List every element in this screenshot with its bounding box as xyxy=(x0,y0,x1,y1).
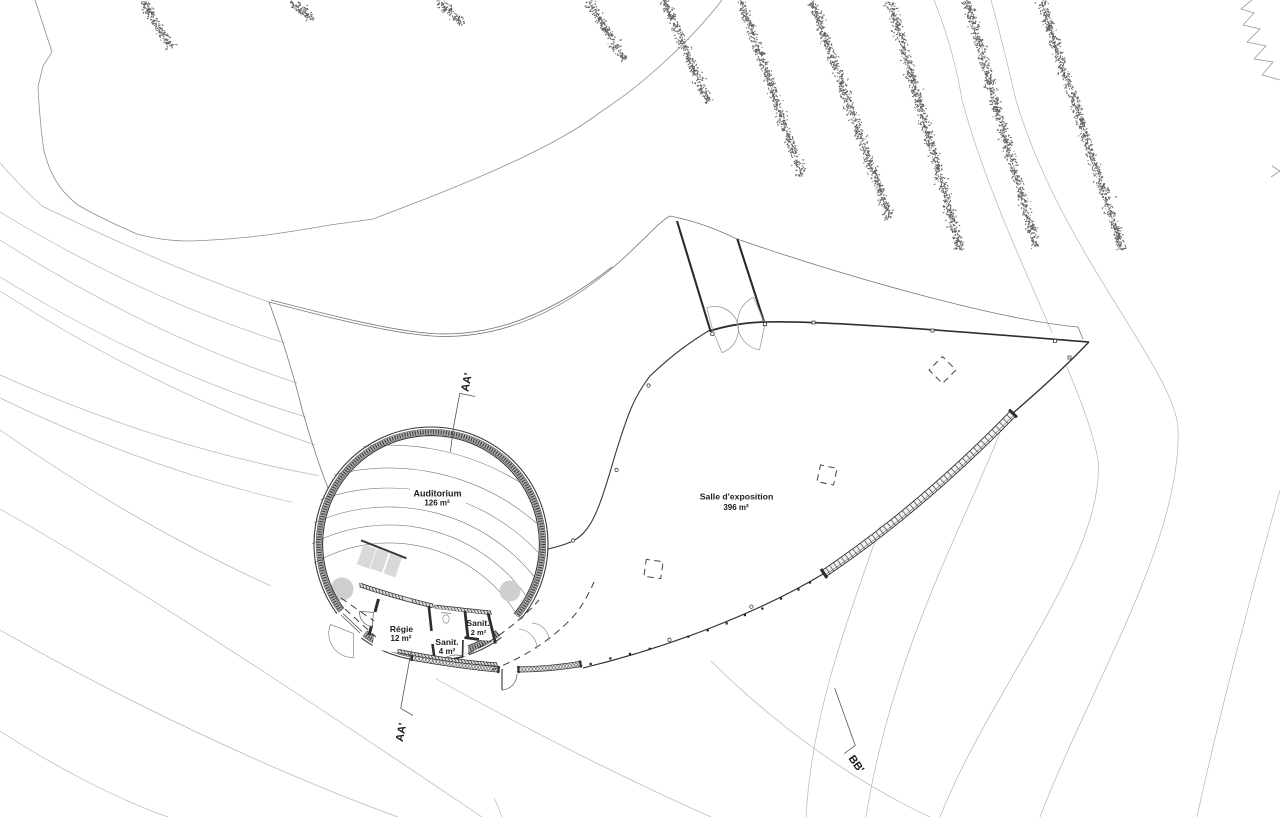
svg-text:Auditorium: Auditorium xyxy=(414,489,462,499)
svg-text:126 m²: 126 m² xyxy=(424,499,450,508)
svg-text:2 m²: 2 m² xyxy=(471,628,487,637)
svg-text:12 m²: 12 m² xyxy=(391,634,412,643)
svg-text:Salle d'exposition: Salle d'exposition xyxy=(700,492,774,502)
svg-text:Régie: Régie xyxy=(390,624,413,634)
svg-text:Sanit.: Sanit. xyxy=(466,618,489,628)
svg-text:4 m²: 4 m² xyxy=(439,647,456,656)
svg-text:396 m²: 396 m² xyxy=(723,503,749,512)
svg-text:Sanit.: Sanit. xyxy=(435,637,458,647)
